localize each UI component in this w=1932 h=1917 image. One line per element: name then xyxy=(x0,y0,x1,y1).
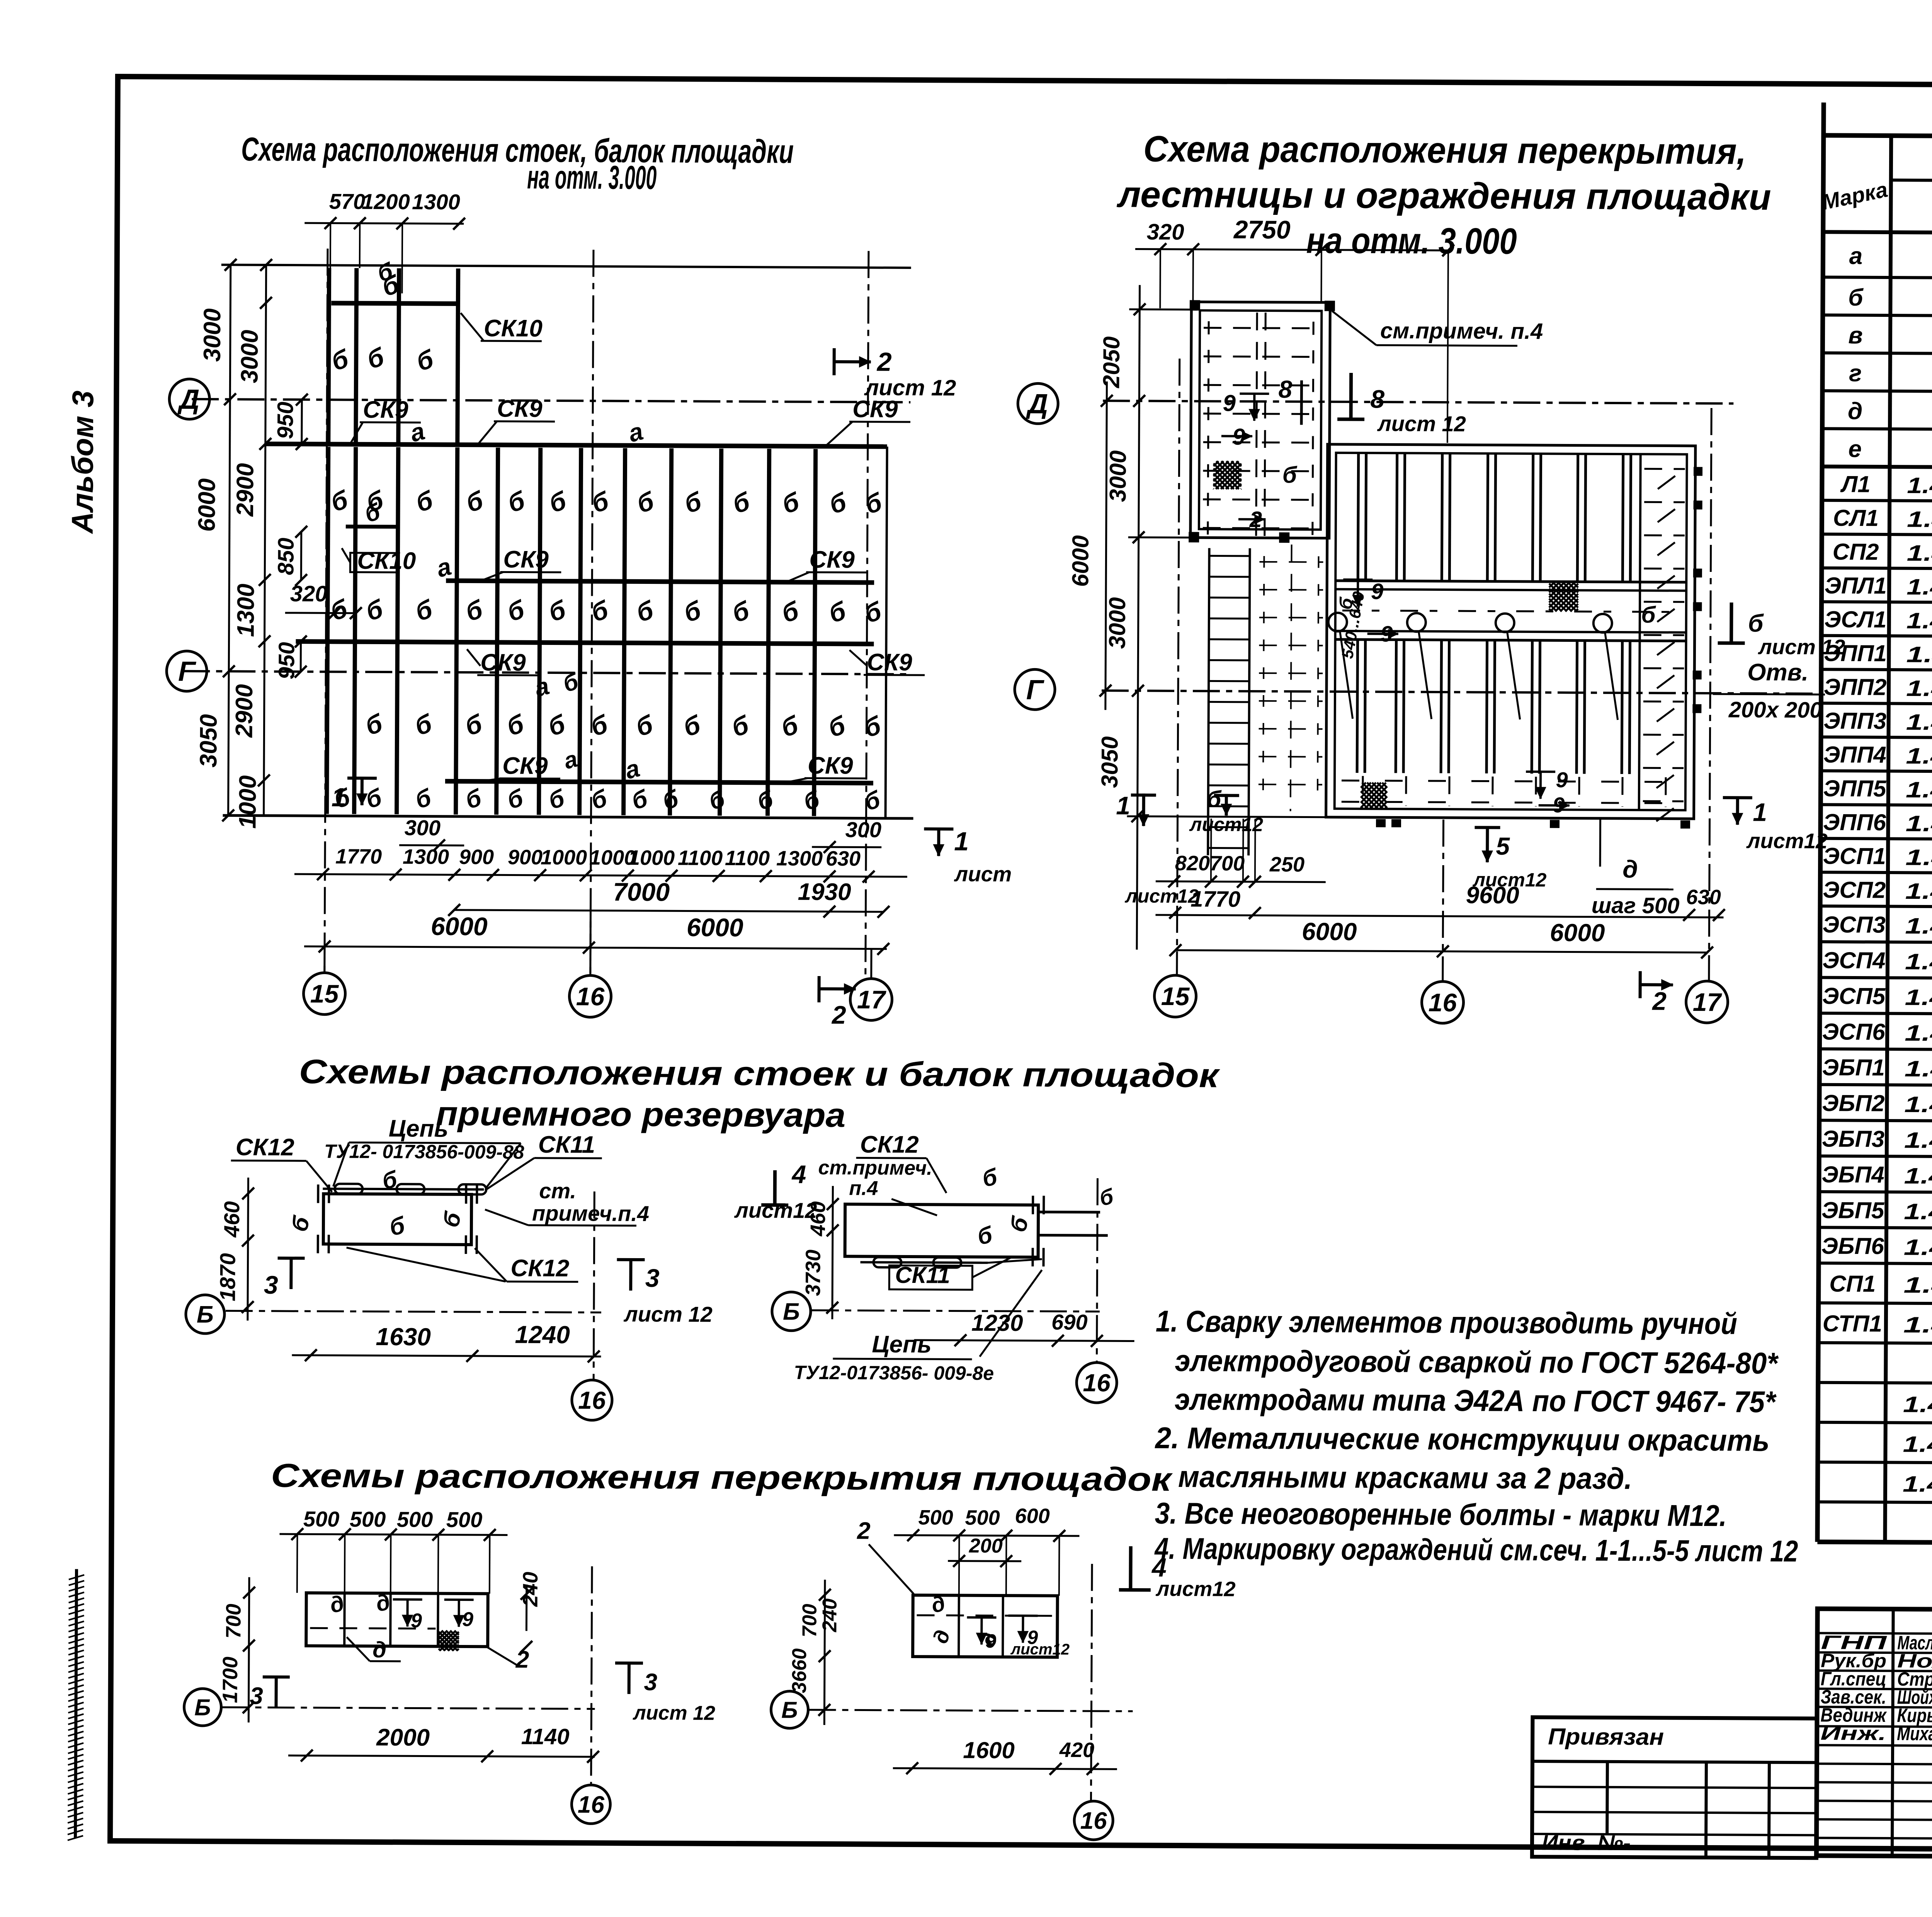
svg-text:б: б xyxy=(463,784,485,814)
svg-text:1.450.3-6 вып.1 ЭСПХ- 36 ( 1: 1.450.3-6 вып.1 ЭСПХ- 36 ( 1шт.) xyxy=(1905,949,1932,976)
svg-text:460: 460 xyxy=(806,1201,830,1237)
svg-text:б: б xyxy=(633,595,658,628)
svg-text:Альбом 3: Альбом 3 xyxy=(65,391,100,534)
svg-text:1.450.3-6 вып.1 ЭБПХ- 7 ( 3ш: 1.450.3-6 вып.1 ЭБПХ- 7 ( 3шт.) xyxy=(1904,1235,1932,1262)
svg-text:ЭСП2: ЭСП2 xyxy=(1823,877,1886,903)
svg-text:1.450.3-6 вып.1 ДБУХ 90 (: 1.450.3-6 вып.1 ДБУХ 90 ( 5шт.) xyxy=(1903,1471,1932,1499)
svg-text:б: б xyxy=(629,785,651,815)
svg-text:1770: 1770 xyxy=(1190,886,1240,912)
svg-text:1770: 1770 xyxy=(335,845,382,869)
svg-text:1000: 1000 xyxy=(628,846,675,870)
svg-text:1.450.3-6 вып.1 ЭСПХ-12 ( 2ш: 1.450.3-6 вып.1 ЭСПХ-12 ( 2шт.) xyxy=(1905,879,1932,906)
svg-text:Схема расположения перекрытия,: Схема расположения перекрытия, xyxy=(1143,129,1746,172)
svg-text:б: б xyxy=(545,709,570,742)
svg-text:масляными красками за 2 раз: масляными красками за 2 разд. xyxy=(1178,1459,1632,1495)
svg-text:СК11: СК11 xyxy=(538,1131,595,1158)
svg-text:СК9: СК9 xyxy=(497,395,543,422)
svg-text:500: 500 xyxy=(303,1507,340,1531)
svg-text:лист12: лист12 xyxy=(1155,1577,1236,1601)
svg-text:1000: 1000 xyxy=(541,846,587,869)
svg-text:б: б xyxy=(286,1213,315,1234)
svg-text:630: 630 xyxy=(1686,886,1721,909)
svg-text:СК12: СК12 xyxy=(510,1255,569,1282)
svg-text:1.450.3-6 вып.1 ЭБПХ- 36 ( 1: 1.450.3-6 вып.1 ЭБПХ- 36 ( 1шт.) xyxy=(1904,1163,1932,1191)
svg-text:1.450.3-6 вып.1 СЛХ 45 п ( 2: 1.450.3-6 вып.1 СЛХ 45 п ( 2шт.) xyxy=(1906,541,1932,568)
svg-text:б: б xyxy=(1282,462,1298,488)
svg-text:б: б xyxy=(364,342,388,374)
svg-text:лестницы и ограждения площадки: лестницы и ограждения площадки xyxy=(1116,174,1771,218)
svg-text:420: 420 xyxy=(1059,1738,1094,1762)
svg-text:2: 2 xyxy=(1651,987,1667,1015)
svg-text:б: б xyxy=(327,485,352,517)
svg-text:1.450.3-6 вып.1 ЭБПХ- 60 ( 2: 1.450.3-6 вып.1 ЭБПХ- 60 ( 2шт.) xyxy=(1904,1199,1932,1226)
svg-text:2. Металлические конструкции: 2. Металлические конструкции окрасить xyxy=(1154,1421,1769,1458)
svg-text:3. Все неоговоренные болты -: 3. Все неоговоренные болты - марки М12. xyxy=(1155,1496,1727,1533)
svg-text:СК9: СК9 xyxy=(363,396,408,424)
svg-text:см.примеч. п.4: см.примеч. п.4 xyxy=(1380,318,1543,344)
svg-text:ЭПЛ1: ЭПЛ1 xyxy=(1825,573,1887,599)
svg-text:шаг 500: шаг 500 xyxy=(1592,893,1680,919)
svg-text:б: б xyxy=(437,1209,466,1230)
svg-text:1.450.3-6 вып.1 ЭППХ- 7 ( 3ш: 1.450.3-6 вып.1 ЭППХ- 7 ( 3шт.) xyxy=(1905,811,1932,838)
svg-text:б: б xyxy=(778,596,803,628)
svg-text:б: б xyxy=(462,594,487,627)
svg-text:15: 15 xyxy=(310,979,339,1008)
svg-text:2900: 2900 xyxy=(231,684,258,738)
svg-text:СК12: СК12 xyxy=(860,1131,919,1158)
svg-text:Л1: Л1 xyxy=(1840,471,1871,497)
svg-text:3: 3 xyxy=(264,1271,278,1299)
svg-text:a: a xyxy=(626,417,646,447)
svg-text:1200: 1200 xyxy=(362,189,410,214)
svg-text:6000: 6000 xyxy=(1067,535,1094,587)
svg-text:ЭСП6: ЭСП6 xyxy=(1822,1019,1886,1045)
svg-text:СК12: СК12 xyxy=(236,1134,294,1161)
svg-text:1700: 1700 xyxy=(219,1657,242,1703)
svg-text:СК10: СК10 xyxy=(357,548,416,575)
svg-text:6000: 6000 xyxy=(1550,919,1605,947)
svg-text:д: д xyxy=(1848,398,1863,425)
svg-text:д: д xyxy=(372,1637,386,1662)
svg-text:1.450.3-6 вып.1 ЭППХ-12 ( 2ш: 1.450.3-6 вып.1 ЭППХ-12 ( 2шт.) xyxy=(1906,676,1932,703)
svg-text:СК9: СК9 xyxy=(480,649,526,676)
svg-text:1.450.3-6 вып.1 ЭСПХ-9 ( 1шт: 1.450.3-6 вып.1 ЭСПХ-9 ( 1шт.) xyxy=(1905,845,1932,872)
svg-text:700: 700 xyxy=(798,1604,821,1637)
svg-text:б: б xyxy=(980,1163,1000,1192)
svg-text:ЭПП5: ЭПП5 xyxy=(1823,776,1887,802)
svg-text:б: б xyxy=(463,485,487,518)
svg-text:б: б xyxy=(660,785,682,815)
svg-text:500: 500 xyxy=(397,1507,433,1531)
svg-text:ЭПП4: ЭПП4 xyxy=(1823,742,1886,768)
svg-text:1.450.3-6 вып.1 ЭСЛХ45-30 (: 1.450.3-6 вып.1 ЭСЛХ45-30 ( 2шт.) xyxy=(1906,608,1932,635)
svg-text:9: 9 xyxy=(1223,390,1236,416)
svg-text:1300: 1300 xyxy=(412,189,460,214)
svg-text:700: 700 xyxy=(222,1604,245,1638)
svg-text:8: 8 xyxy=(1278,375,1292,403)
svg-text:3660: 3660 xyxy=(788,1648,811,1693)
svg-text:9: 9 xyxy=(462,1608,473,1631)
svg-text:2: 2 xyxy=(876,347,892,377)
svg-text:1600: 1600 xyxy=(963,1737,1015,1764)
svg-text:1.450.3-6 вып.1 ЭППХ- 60 ( 2: 1.450.3-6 вып.1 ЭППХ- 60 ( 2шт.) xyxy=(1906,777,1932,804)
svg-text:лист12: лист12 xyxy=(1189,813,1263,835)
svg-text:1.450.3-6 вып.1 ЭБПХ-12 ( 2ш: 1.450.3-6 вып.1 ЭБПХ-12 ( 2шт.) xyxy=(1904,1092,1932,1119)
svg-text:8: 8 xyxy=(1370,384,1384,413)
svg-text:9: 9 xyxy=(411,1609,422,1632)
svg-text:ЭБП2: ЭБП2 xyxy=(1822,1090,1884,1116)
svg-text:б: б xyxy=(363,784,386,814)
svg-text:б: б xyxy=(462,709,486,741)
svg-text:СК9: СК9 xyxy=(502,752,548,779)
svg-text:1.450.3-6 вып.1 ЭБПХ-9 ( 1ш: 1.450.3-6 вып.1 ЭБПХ-9 ( 1шт.) xyxy=(1905,1056,1932,1084)
svg-text:6000: 6000 xyxy=(1302,917,1357,946)
svg-text:300: 300 xyxy=(405,815,441,840)
svg-text:б: б xyxy=(778,710,803,743)
svg-text:б: б xyxy=(413,344,438,377)
svg-text:7000: 7000 xyxy=(613,878,670,907)
svg-text:3000: 3000 xyxy=(1105,450,1131,502)
svg-text:лист 12: лист 12 xyxy=(864,375,956,400)
svg-text:690: 690 xyxy=(1051,1310,1088,1334)
svg-text:200: 200 xyxy=(969,1535,1003,1557)
svg-text:ЭСЛ1: ЭСЛ1 xyxy=(1824,606,1886,633)
svg-text:16: 16 xyxy=(578,1791,605,1818)
svg-text:б: б xyxy=(1641,602,1656,628)
svg-text:б: б xyxy=(825,710,850,743)
svg-text:Марка: Марка xyxy=(1820,177,1890,214)
svg-text:б: б xyxy=(504,486,529,518)
svg-text:б: б xyxy=(801,786,823,816)
svg-text:Отв.: Отв. xyxy=(1747,659,1808,686)
svg-text:б: б xyxy=(680,595,705,628)
svg-text:электродуговой сваркой по Г: электродуговой сваркой по ГОСТ 5264-80* xyxy=(1175,1344,1779,1380)
svg-text:1000: 1000 xyxy=(234,775,261,828)
svg-text:б: б xyxy=(728,710,753,742)
svg-text:9: 9 xyxy=(1371,579,1384,604)
svg-text:Б: Б xyxy=(197,1301,214,1328)
svg-text:1: 1 xyxy=(1116,791,1130,820)
svg-text:б: б xyxy=(587,709,612,742)
svg-text:ЭСП3: ЭСП3 xyxy=(1823,912,1886,938)
svg-text:1240: 1240 xyxy=(515,1321,570,1349)
svg-text:лист12: лист12 xyxy=(1746,828,1828,853)
svg-text:1.450.3-6 вып.1 ЭППХ-30 ( 4ш: 1.450.3-6 вып.1 ЭППХ-30 ( 4шт.) xyxy=(1906,709,1932,737)
svg-text:д: д xyxy=(976,1630,1002,1649)
svg-text:ЭСП4: ЭСП4 xyxy=(1822,947,1885,973)
svg-text:630: 630 xyxy=(826,847,861,870)
svg-text:е: е xyxy=(1848,436,1862,463)
svg-text:600: 600 xyxy=(1015,1504,1050,1527)
svg-text:6000: 6000 xyxy=(194,478,221,532)
svg-text:1300: 1300 xyxy=(233,583,260,637)
svg-text:ст.: ст. xyxy=(539,1179,576,1203)
svg-text:б: б xyxy=(729,595,753,628)
svg-text:1140: 1140 xyxy=(521,1724,570,1750)
svg-text:1.450.3-6 вып.1 ДПУХ90 ( 5: 1.450.3-6 вып.1 ДПУХ90 ( 5шт.) xyxy=(1903,1392,1932,1419)
svg-text:б: б xyxy=(1097,1184,1116,1211)
svg-text:б: б xyxy=(503,709,528,742)
svg-text:б: б xyxy=(861,487,886,520)
svg-text:1.450.3-6 вып.1 ЭБПХ- 30( 4ш: 1.450.3-6 вып.1 ЭБПХ- 30( 4шт.) xyxy=(1904,1128,1932,1155)
svg-text:СЛ1: СЛ1 xyxy=(1833,505,1879,531)
svg-text:ЭПП1: ЭПП1 xyxy=(1824,640,1887,667)
svg-text:2000: 2000 xyxy=(376,1724,430,1751)
svg-text:б: б xyxy=(729,486,754,519)
svg-text:1100: 1100 xyxy=(725,847,770,870)
svg-text:16: 16 xyxy=(578,1386,606,1414)
svg-text:16: 16 xyxy=(576,982,605,1010)
svg-text:ЭБП5: ЭБП5 xyxy=(1821,1197,1885,1223)
svg-text:5: 5 xyxy=(1496,832,1510,860)
svg-text:4. Маркировку ограждений см.: 4. Маркировку ограждений см.сеч. 1-1...5… xyxy=(1154,1531,1798,1568)
svg-text:СК9: СК9 xyxy=(867,649,912,676)
svg-text:2: 2 xyxy=(831,1000,846,1029)
svg-text:ЭБП6: ЭБП6 xyxy=(1821,1233,1884,1259)
svg-text:г: г xyxy=(1849,360,1862,387)
svg-text:3000: 3000 xyxy=(236,330,263,383)
svg-text:Д: Д xyxy=(1026,388,1048,419)
svg-text:3000: 3000 xyxy=(199,308,226,362)
svg-text:а: а xyxy=(1849,243,1863,269)
svg-text:6000: 6000 xyxy=(687,913,743,942)
svg-text:лист 12: лист 12 xyxy=(632,1702,715,1725)
svg-text:СК9: СК9 xyxy=(809,546,855,573)
svg-text:ЭБП3: ЭБП3 xyxy=(1822,1126,1884,1152)
svg-text:1.450.3-6 вып.1 ЭСПХ-30 ( 4ш: 1.450.3-6 вып.1 ЭСПХ-30 ( 4шт.) xyxy=(1905,913,1932,941)
svg-text:на отм. 3.000: на отм. 3.000 xyxy=(1306,220,1517,262)
svg-text:250: 250 xyxy=(1269,853,1304,876)
svg-text:16: 16 xyxy=(1083,1369,1111,1397)
svg-text:15: 15 xyxy=(1161,982,1190,1010)
svg-text:1.450.3-6 вып.1 ДСУХ 90 (: 1.450.3-6 вып.1 ДСУХ 90 ( 5шт.) xyxy=(1903,1432,1932,1459)
svg-text:a: a xyxy=(434,552,454,583)
svg-text:2900: 2900 xyxy=(232,463,259,517)
svg-text:1.450.3-6 вып.1 СЛХ 45 л ( 2: 1.450.3-6 вып.1 СЛХ 45 л ( 2шт.) xyxy=(1907,507,1932,534)
svg-text:9600: 9600 xyxy=(1466,882,1519,909)
svg-text:СП2: СП2 xyxy=(1833,539,1879,565)
svg-text:б: б xyxy=(754,786,777,816)
svg-text:1: 1 xyxy=(332,782,346,812)
svg-text:Цепь: Цепь xyxy=(389,1115,449,1142)
svg-text:Схемы расположения перекрыти: Схемы расположения перекрытия площадок xyxy=(271,1457,1173,1498)
svg-text:Б: Б xyxy=(194,1694,211,1720)
svg-text:п.4: п.4 xyxy=(849,1177,878,1199)
svg-text:б: б xyxy=(633,709,657,742)
svg-text:1.450.3-6 вып.1 ЭППХ- 36 ( 1: 1.450.3-6 вып.1 ЭППХ- 36 ( 1шт.) xyxy=(1906,743,1932,771)
svg-text:лист12: лист12 xyxy=(734,1198,817,1223)
svg-text:ЭСП5: ЭСП5 xyxy=(1822,983,1886,1009)
svg-text:2050: 2050 xyxy=(1098,336,1124,388)
svg-text:б: б xyxy=(546,784,568,815)
svg-text:б: б xyxy=(504,784,527,815)
svg-text:850: 850 xyxy=(273,538,298,575)
svg-text:б: б xyxy=(327,594,352,626)
svg-text:1630: 1630 xyxy=(376,1323,431,1351)
svg-text:б: б xyxy=(387,1212,408,1241)
svg-text:1.450.3-6 вып.1 СПХ ( 2: 1.450.3-6 вып.1 СПХ ( 23шт.) xyxy=(1903,1272,1932,1300)
svg-text:17: 17 xyxy=(1693,988,1723,1016)
svg-text:электродами типа Э42А по ГО: электродами типа Э42А по ГОСТ 9467- 75* xyxy=(1175,1382,1777,1419)
svg-text:б: б xyxy=(861,786,884,816)
svg-text:820: 820 xyxy=(1175,852,1210,875)
svg-text:б: б xyxy=(826,487,850,519)
svg-text:б: б xyxy=(412,784,435,814)
svg-text:1.450.3-6 вып.1 ЭППХ-9 ( 1шт: 1.450.3-6 вып.1 ЭППХ-9 ( 1шт.) xyxy=(1906,642,1932,669)
svg-text:б: б xyxy=(1848,284,1864,311)
svg-text:Инж.: Инж. xyxy=(1820,1722,1886,1744)
svg-text:б: б xyxy=(412,594,437,627)
svg-text:б: б xyxy=(779,487,803,519)
svg-text:Цепь: Цепь xyxy=(872,1331,932,1358)
svg-text:в: в xyxy=(1848,322,1863,349)
svg-text:200х 200: 200х 200 xyxy=(1728,697,1822,723)
svg-text:1870: 1870 xyxy=(215,1253,240,1301)
svg-text:б: б xyxy=(362,708,387,741)
svg-text:лист12: лист12 xyxy=(1125,885,1199,907)
svg-text:3: 3 xyxy=(250,1683,263,1709)
svg-text:ЭПП6: ЭПП6 xyxy=(1823,809,1886,835)
svg-text:1.450.3-6 вып.1 ЭСПХ- 7 ( 3: 1.450.3-6 вып.1 ЭСПХ- 7 ( 3шт.) xyxy=(1905,1021,1932,1048)
svg-text:ЭПП2: ЭПП2 xyxy=(1824,674,1887,700)
svg-text:3050: 3050 xyxy=(1097,736,1123,788)
svg-text:СК10: СК10 xyxy=(484,315,543,342)
svg-text:б: б xyxy=(1207,786,1222,812)
svg-text:б: б xyxy=(362,594,387,626)
svg-text:лист12: лист12 xyxy=(1010,1641,1070,1658)
svg-text:ЭБП4: ЭБП4 xyxy=(1821,1162,1884,1188)
svg-text:3: 3 xyxy=(645,1264,660,1292)
svg-text:ЭБП1: ЭБП1 xyxy=(1822,1055,1885,1081)
svg-text:Г: Г xyxy=(1026,675,1044,706)
svg-text:б: б xyxy=(681,486,706,519)
svg-text:б: б xyxy=(633,486,658,519)
svg-text:СК9: СК9 xyxy=(503,546,549,573)
svg-text:1.450.3-6 вып.1 СТПХ ( 2шт: 1.450.3-6 вып.1 СТПХ ( 2шт.) xyxy=(1903,1312,1932,1339)
svg-text:900: 900 xyxy=(508,845,543,869)
svg-text:1. Сварку элементов производ: 1. Сварку элементов производить ручной xyxy=(1156,1304,1737,1341)
svg-text:4: 4 xyxy=(791,1160,806,1189)
svg-text:500: 500 xyxy=(918,1506,953,1529)
svg-text:1300: 1300 xyxy=(403,845,449,869)
svg-text:700: 700 xyxy=(1210,852,1245,875)
svg-text:1.450.3-6 вып.1 ЭСПХ- 60 ( 2: 1.450.3-6 вып.1 ЭСПХ- 60 ( 2шт.) xyxy=(1905,985,1932,1012)
svg-text:б: б xyxy=(546,486,570,518)
svg-text:460: 460 xyxy=(219,1201,244,1238)
svg-text:лист 12: лист 12 xyxy=(1377,411,1466,436)
svg-text:570: 570 xyxy=(329,189,366,213)
svg-text:ЭСП1: ЭСП1 xyxy=(1823,843,1886,869)
svg-text:6000: 6000 xyxy=(431,912,488,941)
svg-text:950: 950 xyxy=(274,642,299,679)
svg-text:1230: 1230 xyxy=(971,1310,1023,1336)
svg-text:950: 950 xyxy=(273,401,298,439)
svg-text:лист: лист xyxy=(954,862,1012,886)
svg-text:2750: 2750 xyxy=(1233,215,1291,244)
svg-text:1.450.3-6 вып.1 ЛХВ 45-30. 7: 1.450.3-6 вып.1 ЛХВ 45-30. 7 ( 1шт.) xyxy=(1907,473,1932,500)
svg-text:Д: Д xyxy=(177,384,199,415)
svg-text:на отм. 3.000: на отм. 3.000 xyxy=(527,159,656,196)
svg-text:17: 17 xyxy=(857,985,887,1014)
svg-text:9: 9 xyxy=(1556,767,1568,792)
svg-text:320: 320 xyxy=(1147,219,1184,245)
svg-text:1: 1 xyxy=(1753,798,1767,827)
svg-text:б: б xyxy=(412,485,437,518)
svg-text:б: б xyxy=(545,595,570,627)
svg-text:500: 500 xyxy=(446,1507,483,1532)
svg-text:2: 2 xyxy=(857,1517,871,1544)
svg-text:лист 12: лист 12 xyxy=(623,1302,713,1327)
svg-text:Михайлова: Михайлова xyxy=(1897,1723,1932,1745)
svg-text:б: б xyxy=(1748,609,1764,637)
svg-text:СТП1: СТП1 xyxy=(1823,1310,1883,1337)
svg-text:д: д xyxy=(929,1628,955,1646)
svg-text:б: б xyxy=(825,596,850,628)
svg-text:Инв. №-: Инв. №- xyxy=(1542,1830,1631,1855)
svg-text:3: 3 xyxy=(644,1669,657,1696)
svg-text:1.450.3-6 вып.1 ЭПЛХ45-30 (: 1.450.3-6 вып.1 ЭПЛХ45-30 ( 2шт.) xyxy=(1906,574,1932,601)
svg-text:Схема расположения стоек, бало: Схема расположения стоек, балок площадки xyxy=(241,131,794,170)
svg-text:б: б xyxy=(328,344,353,376)
svg-text:16: 16 xyxy=(1429,988,1458,1017)
svg-text:Схемы расположения стоек и бал: Схемы расположения стоек и балок площадо… xyxy=(299,1052,1220,1094)
svg-text:ст.примеч.: ст.примеч. xyxy=(818,1157,932,1179)
svg-text:б: б xyxy=(861,711,885,743)
svg-text:900: 900 xyxy=(459,845,494,869)
svg-text:приемного резервуара: приемного резервуара xyxy=(436,1094,845,1135)
svg-text:3000: 3000 xyxy=(1104,597,1130,649)
svg-text:240: 240 xyxy=(818,1599,841,1633)
svg-text:б: б xyxy=(861,596,886,629)
svg-text:Б: Б xyxy=(781,1697,798,1723)
svg-text:б: б xyxy=(412,709,436,741)
svg-text:1300: 1300 xyxy=(776,847,823,870)
svg-text:б: б xyxy=(504,595,529,627)
svg-text:3050: 3050 xyxy=(195,714,222,767)
svg-text:ЭПП3: ЭПП3 xyxy=(1823,708,1886,734)
svg-text:СК9: СК9 xyxy=(808,752,853,779)
svg-text:б: б xyxy=(975,1221,995,1250)
svg-text:б: б xyxy=(680,710,705,742)
svg-text:3730: 3730 xyxy=(801,1250,825,1296)
svg-text:16: 16 xyxy=(1080,1808,1107,1834)
svg-text:1100: 1100 xyxy=(678,846,723,870)
svg-text:320: 320 xyxy=(290,581,328,606)
svg-text:300: 300 xyxy=(845,817,882,842)
svg-text:500: 500 xyxy=(350,1507,386,1531)
svg-text:Г: Г xyxy=(178,656,196,687)
svg-text:б: б xyxy=(1005,1213,1034,1235)
svg-text:д: д xyxy=(1622,855,1638,883)
svg-text:1930: 1930 xyxy=(798,879,851,906)
svg-text:СП1: СП1 xyxy=(1829,1271,1876,1297)
svg-text:примеч.п.4: примеч.п.4 xyxy=(532,1201,649,1226)
svg-text:б: б xyxy=(706,785,729,815)
svg-text:500: 500 xyxy=(965,1506,1000,1529)
svg-text:1: 1 xyxy=(954,827,969,856)
svg-text:ТУ12-0173856- 009-8е: ТУ12-0173856- 009-8е xyxy=(794,1362,994,1384)
svg-text:Привязан: Привязан xyxy=(1548,1723,1664,1750)
svg-text:a: a xyxy=(561,746,580,774)
svg-text:Б: Б xyxy=(783,1298,800,1325)
